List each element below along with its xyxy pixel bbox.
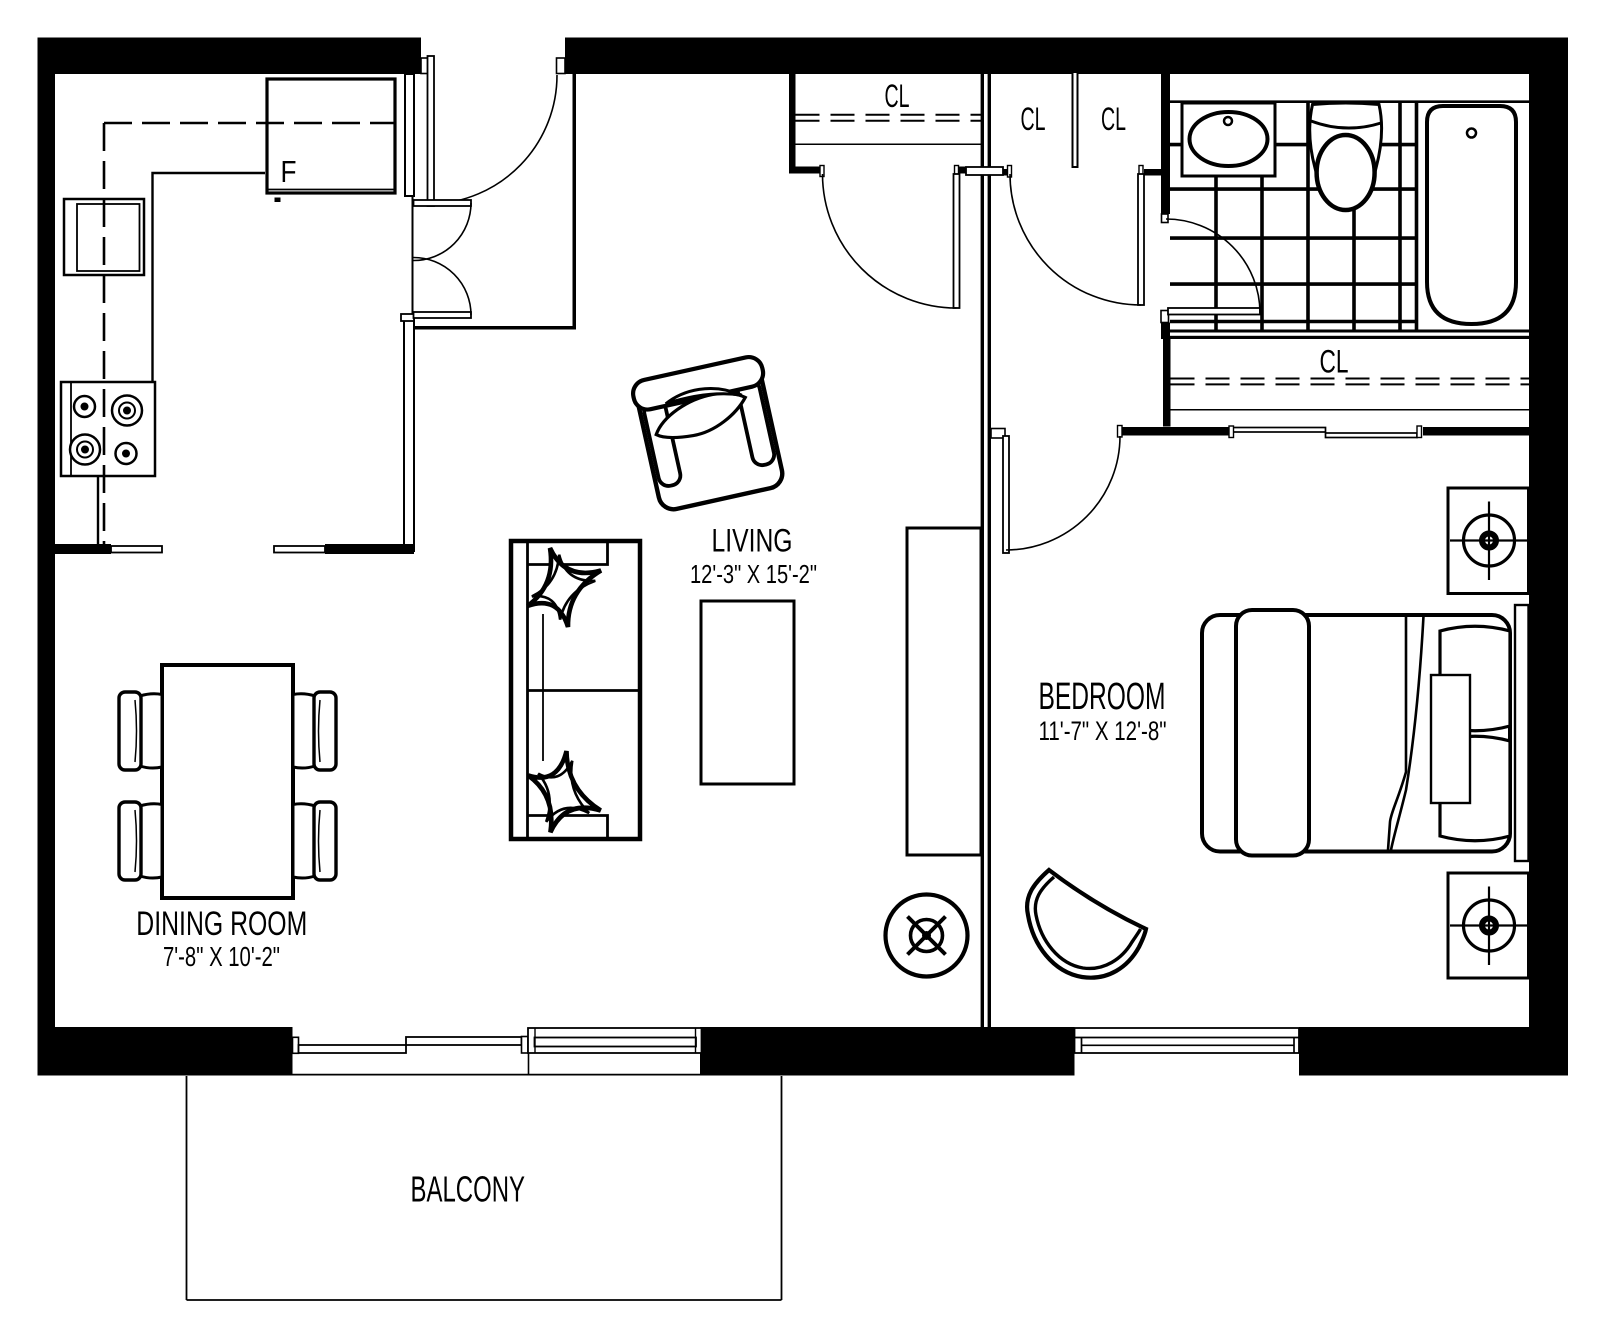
svg-text:CL: CL	[1320, 344, 1349, 380]
svg-text:BEDROOM: BEDROOM	[1039, 676, 1166, 718]
svg-text:7'-8" X 10'-2": 7'-8" X 10'-2"	[163, 941, 280, 972]
svg-text:11'-7" X 12'-8": 11'-7" X 12'-8"	[1039, 716, 1167, 746]
svg-text:CL: CL	[1021, 101, 1046, 137]
svg-text:BALCONY: BALCONY	[411, 1169, 526, 1210]
svg-text:DINING ROOM: DINING ROOM	[136, 905, 307, 943]
svg-text:CL: CL	[885, 78, 910, 114]
svg-text:F: F	[281, 154, 297, 189]
svg-text:12'-3" X 15'-2": 12'-3" X 15'-2"	[690, 561, 817, 589]
svg-text:LIVING: LIVING	[712, 523, 793, 559]
svg-text:CL: CL	[1101, 101, 1126, 137]
